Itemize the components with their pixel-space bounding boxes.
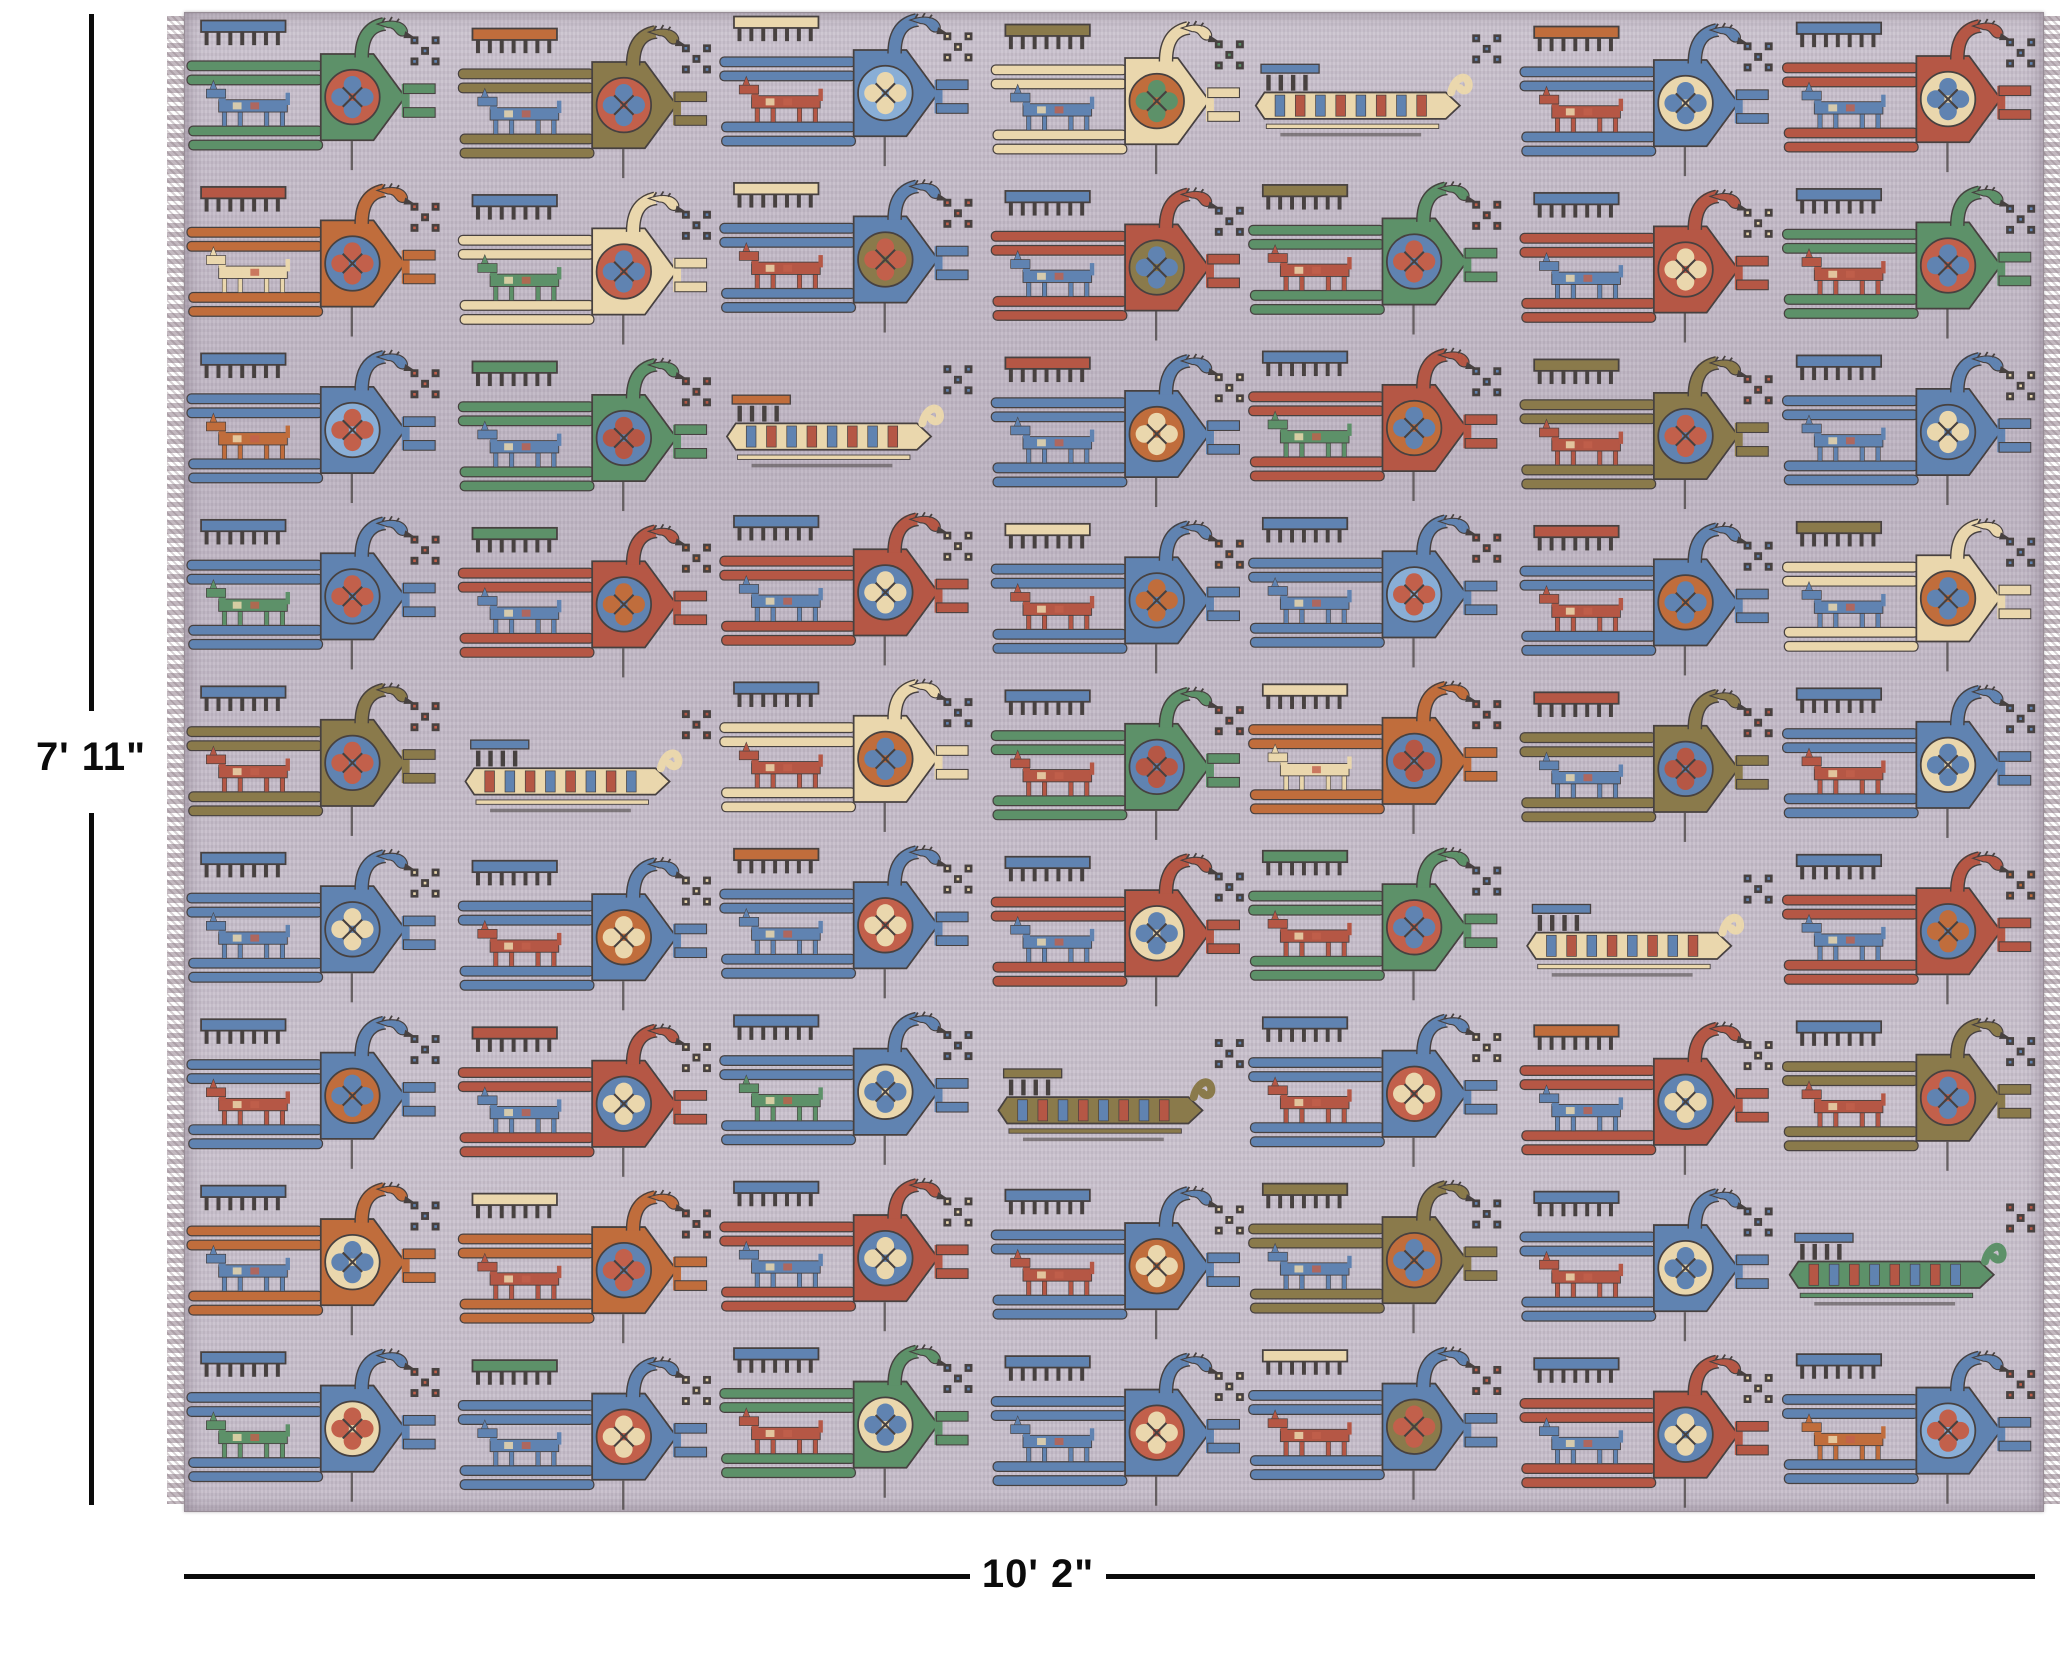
bird-motif [991,687,1244,840]
bird-motif [1783,518,2036,671]
bird-motif [991,21,1244,174]
bird-motif [1783,1018,2036,1171]
bird-motif [458,1190,711,1343]
bird-motif [1520,189,1773,342]
width-label: 10' 2" [968,1552,1108,1597]
bird-motif [1783,1351,2036,1504]
bird-motif [187,1016,440,1169]
bird-motif [720,1178,973,1331]
bird-motif [1249,1347,1502,1500]
bird-motif [458,1024,711,1177]
bird-motif [1520,1355,1773,1508]
bird-motif [458,857,711,1010]
rug-pattern-svg [185,13,2043,1511]
bird-motif [187,516,440,669]
bird-motif [187,183,440,336]
bird-motif [458,191,711,344]
width-dimension-line-left [184,1574,970,1579]
sleigh-motif [727,365,973,467]
bird-motif [1520,23,1773,176]
bird-motif [187,1182,440,1335]
bird-motif [1249,181,1502,334]
bird-motif [1783,185,2036,338]
bird-motif [458,25,711,178]
bird-motif [991,520,1244,673]
bird-motif [991,187,1244,340]
bird-motif [458,524,711,677]
height-dimension-line-top [89,14,94,711]
bird-motif [1249,847,1502,1000]
bird-motif [1520,522,1773,675]
bird-motif [991,354,1244,507]
bird-motif [720,13,973,166]
bird-motif [991,1353,1244,1506]
height-dimension-line-bottom [89,813,94,1505]
rug-fringe-right [2043,16,2060,1504]
bird-motif [720,512,973,665]
width-dimension-line-right [1106,1574,2035,1579]
bird-motif [720,1345,973,1498]
bird-motif [1783,19,2036,172]
bird-motif [720,679,973,832]
bird-motif [1783,685,2036,838]
bird-motif [1249,1180,1502,1333]
bird-motif [1249,348,1502,501]
bird-motif [187,350,440,503]
bird-motif [1520,689,1773,842]
bird-motif [1783,352,2036,505]
bird-motif [720,179,973,332]
bird-motif [720,1012,973,1165]
bird-motif [187,849,440,1002]
bird-motif [1249,681,1502,834]
sleigh-motif [1790,1203,2036,1305]
rug-fringe-left [167,16,184,1504]
bird-motif [187,1349,440,1502]
bird-motif [1520,1188,1773,1341]
product-image: 7' 11" 10' 2" [0,0,2063,1658]
bird-motif [991,1186,1244,1339]
bird-motif [991,853,1244,1006]
bird-motif [187,683,440,836]
bird-motif [720,845,973,998]
bird-motif [458,358,711,511]
bird-motif [1249,514,1502,667]
bird-motif [187,17,440,170]
bird-motif [1783,851,2036,1004]
sleigh-motif [465,710,711,812]
sleigh-motif [1256,34,1502,136]
bird-motif [458,1357,711,1510]
sleigh-motif [998,1039,1244,1141]
bird-motif [1520,356,1773,509]
height-label: 7' 11" [8,735,174,780]
bird-motif [1249,1014,1502,1167]
sleigh-motif [1527,875,1773,977]
bird-motif [1520,1022,1773,1175]
rug-image [184,12,2044,1512]
